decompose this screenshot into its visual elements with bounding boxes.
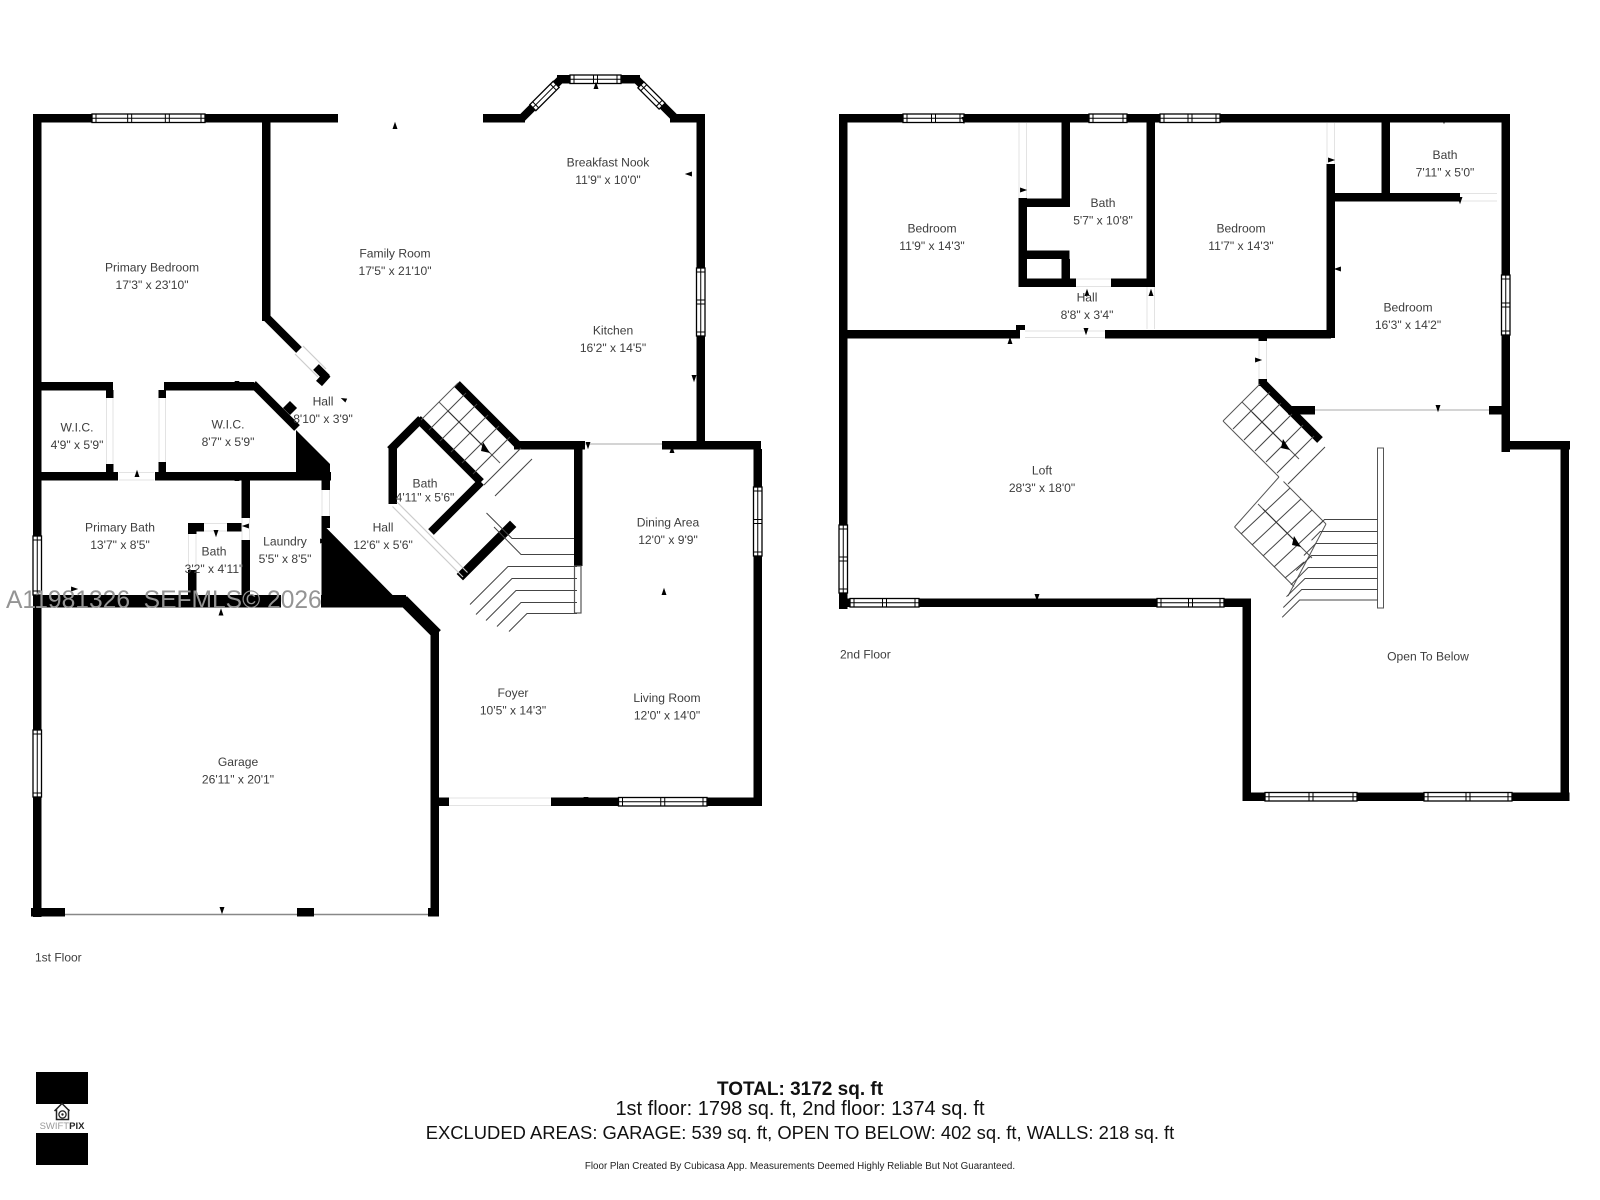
svg-text:7'11" x 5'0": 7'11" x 5'0" [1416, 166, 1475, 180]
svg-text:3'2" x 4'11": 3'2" x 4'11" [185, 562, 244, 576]
svg-text:8'8" x 3'4": 8'8" x 3'4" [1061, 308, 1114, 322]
svg-text:11'9" x 10'0": 11'9" x 10'0" [575, 173, 640, 187]
svg-text:8'7" x 5'9": 8'7" x 5'9" [202, 435, 255, 449]
svg-text:Bedroom: Bedroom [1216, 221, 1265, 235]
svg-text:Hall: Hall [313, 394, 334, 408]
svg-text:11'9" x 14'3": 11'9" x 14'3" [899, 239, 964, 253]
svg-text:Bath: Bath [413, 476, 438, 490]
svg-text:Kitchen: Kitchen [593, 323, 633, 337]
svg-text:Garage: Garage [218, 755, 259, 769]
svg-text:Open To Below: Open To Below [1387, 649, 1469, 663]
svg-text:Bath: Bath [1433, 148, 1458, 162]
svg-text:26'11" x 20'1": 26'11" x 20'1" [202, 773, 274, 787]
svg-text:Family Room: Family Room [359, 246, 430, 260]
svg-text:16'3" x 14'2": 16'3" x 14'2" [1375, 318, 1441, 332]
svg-text:Floor Plan Created By Cubicasa: Floor Plan Created By Cubicasa App. Meas… [585, 1161, 1015, 1172]
svg-text:5'7" x 10'8": 5'7" x 10'8" [1073, 214, 1133, 228]
svg-text:12'0" x 9'9": 12'0" x 9'9" [638, 533, 698, 547]
svg-text:1st Floor: 1st Floor [35, 950, 82, 964]
svg-text:4'9" x 5'9": 4'9" x 5'9" [51, 438, 104, 452]
svg-text:Foyer: Foyer [498, 686, 529, 700]
svg-text:Hall: Hall [373, 520, 394, 534]
svg-text:Bedroom: Bedroom [1383, 300, 1432, 314]
svg-text:4'11" x 5'6": 4'11" x 5'6" [396, 490, 455, 504]
svg-text:EXCLUDED AREAS: GARAGE: 539 sq: EXCLUDED AREAS: GARAGE: 539 sq. ft, OPEN… [426, 1122, 1175, 1143]
svg-text:2nd Floor: 2nd Floor [840, 647, 891, 661]
svg-text:11'7" x 14'3": 11'7" x 14'3" [1208, 239, 1273, 253]
svg-text:13'7" x 8'5": 13'7" x 8'5" [90, 538, 150, 552]
svg-text:Loft: Loft [1032, 463, 1053, 477]
svg-text:Dining Area: Dining Area [637, 515, 700, 529]
svg-text:1st floor: 1798 sq. ft, 2nd fl: 1st floor: 1798 sq. ft, 2nd floor: 1374 … [615, 1098, 985, 1120]
svg-text:W.I.C.: W.I.C. [61, 420, 94, 434]
svg-text:8'10" x 3'9": 8'10" x 3'9" [293, 412, 353, 426]
svg-text:Living Room: Living Room [633, 691, 700, 705]
svg-text:17'5" x 21'10": 17'5" x 21'10" [358, 264, 431, 278]
svg-text:Bath: Bath [1091, 196, 1116, 210]
svg-text:28'3" x 18'0": 28'3" x 18'0" [1009, 481, 1075, 495]
svg-text:Bath: Bath [202, 544, 227, 558]
svg-text:Primary Bath: Primary Bath [85, 520, 155, 534]
svg-text:Breakfast Nook: Breakfast Nook [567, 155, 651, 169]
svg-text:TOTAL: 3172 sq. ft: TOTAL: 3172 sq. ft [717, 1079, 884, 1100]
svg-text:Laundry: Laundry [263, 534, 308, 548]
svg-text:W.I.C.: W.I.C. [212, 417, 245, 431]
svg-text:Hall: Hall [1077, 290, 1098, 304]
svg-text:12'6" x 5'6": 12'6" x 5'6" [353, 538, 413, 552]
svg-text:Primary Bedroom: Primary Bedroom [105, 260, 199, 274]
svg-text:A11981326 SEFMLS© 2026: A11981326 SEFMLS© 2026 [6, 587, 322, 614]
svg-text:Bedroom: Bedroom [907, 221, 956, 235]
svg-text:16'2" x 14'5": 16'2" x 14'5" [580, 341, 646, 355]
svg-text:12'0" x 14'0": 12'0" x 14'0" [634, 709, 700, 723]
svg-text:10'5" x 14'3": 10'5" x 14'3" [480, 704, 546, 718]
svg-text:SWIFTPIX: SWIFTPIX [40, 1121, 86, 1132]
svg-text:17'3" x 23'10": 17'3" x 23'10" [115, 278, 188, 292]
svg-text:5'5" x 8'5": 5'5" x 8'5" [259, 552, 312, 566]
